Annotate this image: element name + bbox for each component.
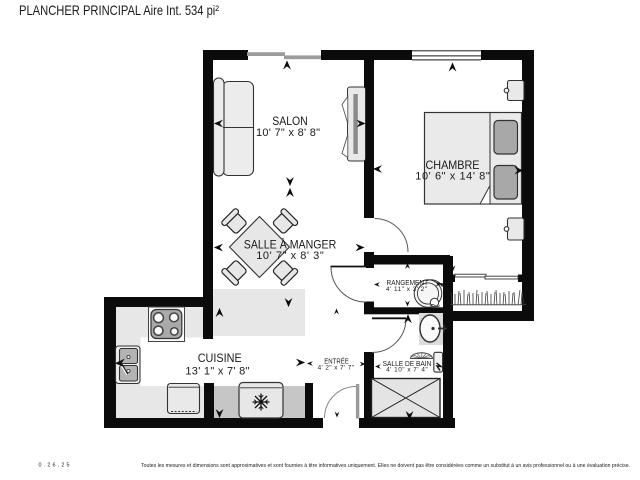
svg-text:PLANCHER PRINCIPAL Aire Int. 5: PLANCHER PRINCIPAL Aire Int. 534 pi²: [19, 2, 219, 18]
svg-text:10' 7" x 8' 8": 10' 7" x 8' 8": [256, 127, 320, 139]
svg-text:CUISINE: CUISINE: [198, 351, 242, 365]
svg-text:4' 11" x 3' 2": 4' 11" x 3' 2": [386, 286, 427, 293]
svg-text:SALON: SALON: [272, 114, 308, 128]
svg-text:4' 2" x 7' 7": 4' 2" x 7' 7": [318, 364, 354, 371]
svg-text:4' 10" x 7' 4": 4' 10" x 7' 4": [386, 366, 428, 373]
svg-text:10' 6" x 14' 8": 10' 6" x 14' 8": [415, 171, 490, 183]
svg-text:Toutes les mesures et dimensio: Toutes les mesures et dimensions sont ap…: [141, 463, 630, 469]
svg-text:10' 7" x 8' 3": 10' 7" x 8' 3": [256, 250, 324, 262]
svg-text:13' 1" x 7' 8": 13' 1" x 7' 8": [185, 366, 249, 378]
